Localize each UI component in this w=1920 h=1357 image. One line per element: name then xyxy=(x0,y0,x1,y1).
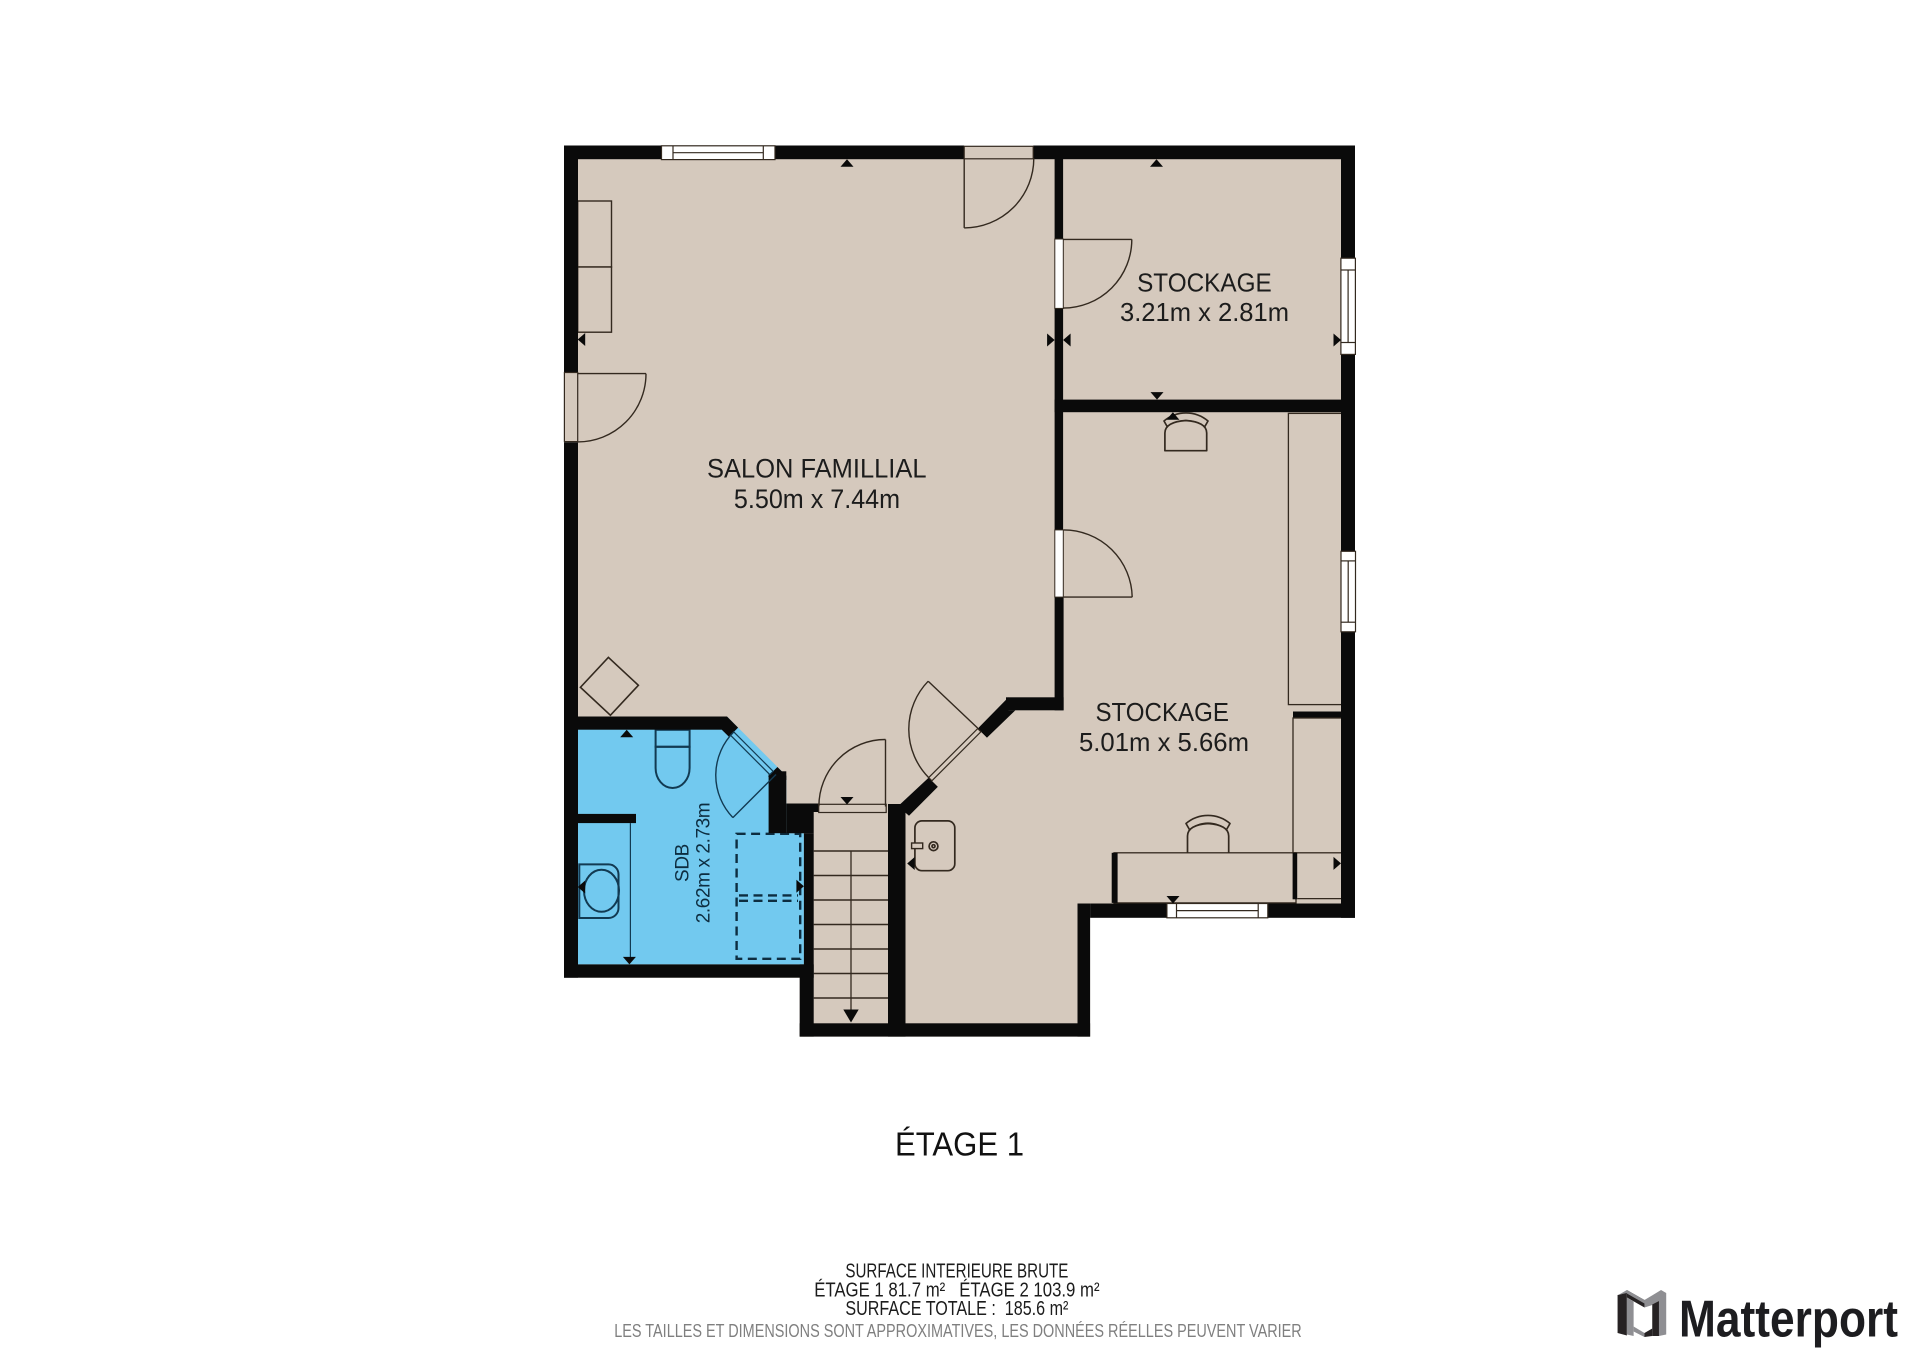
svg-text:STOCKAGE: STOCKAGE xyxy=(1137,268,1272,298)
svg-text:SURFACE TOTALE : 185.6 m²: SURFACE TOTALE : 185.6 m² xyxy=(845,1298,1068,1320)
svg-text:5.01m x 5.66m: 5.01m x 5.66m xyxy=(1079,727,1249,757)
svg-text:Matterport: Matterport xyxy=(1679,1291,1898,1349)
svg-text:LES TAILLES ET DIMENSIONS SONT: LES TAILLES ET DIMENSIONS SONT APPROXIMA… xyxy=(614,1320,1302,1341)
svg-text:5.50m x 7.44m: 5.50m x 7.44m xyxy=(734,484,900,514)
svg-text:3.21m x 2.81m: 3.21m x 2.81m xyxy=(1120,297,1289,327)
svg-text:STOCKAGE: STOCKAGE xyxy=(1095,697,1229,727)
svg-text:ÉTAGE 1: ÉTAGE 1 xyxy=(895,1126,1024,1163)
svg-text:2.62m x 2.73m: 2.62m x 2.73m xyxy=(694,803,715,923)
svg-text:SDB: SDB xyxy=(673,844,694,882)
svg-text:SALON FAMILLIAL: SALON FAMILLIAL xyxy=(707,453,927,483)
